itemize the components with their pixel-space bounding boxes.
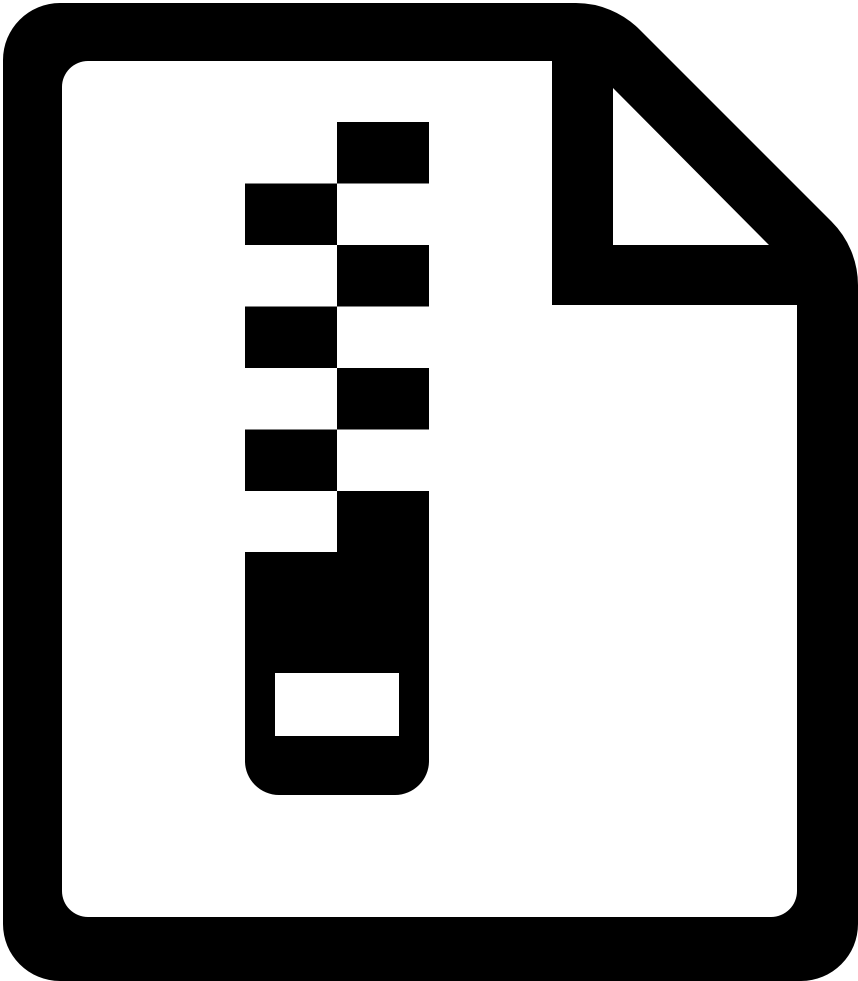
zipper-tooth-right-1 xyxy=(337,122,429,184)
zip-file-icon-graphic xyxy=(0,0,858,981)
zipper-tooth-right-2 xyxy=(337,245,429,307)
zipper-tooth-right-3 xyxy=(337,368,429,430)
zipper-tooth-left-3 xyxy=(245,430,337,492)
zipper-tooth-left-1 xyxy=(245,184,337,246)
zipper-tooth-left-2 xyxy=(245,307,337,369)
zip-file-icon xyxy=(0,0,858,981)
